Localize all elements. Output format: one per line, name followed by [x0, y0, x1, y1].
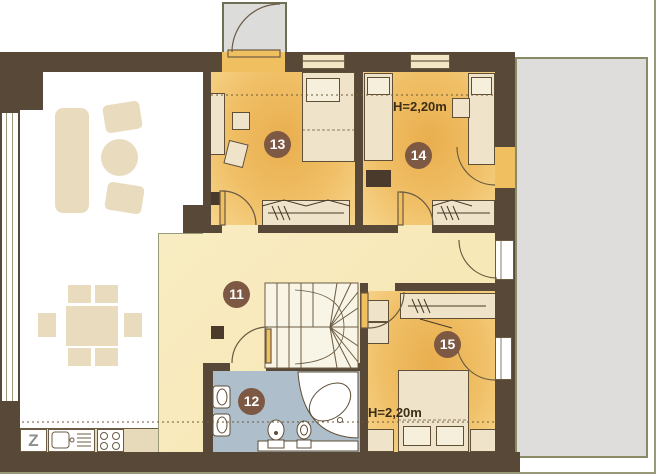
- dining-chair: [95, 285, 118, 303]
- wall-bathroom-left: [203, 363, 213, 452]
- left-wall-window: [2, 113, 18, 401]
- room-14-number: 14: [411, 147, 427, 163]
- room-11-badge: 11: [223, 281, 250, 308]
- room-15-badge: 15: [434, 331, 461, 358]
- left-window-glass-line2: [12, 113, 13, 401]
- void-hall-edge-horizontal: [158, 233, 203, 234]
- cabinet-room14: [366, 170, 391, 187]
- dining-chair: [68, 348, 91, 366]
- kitchen-appliance-z: Z: [20, 429, 47, 452]
- dining-chair: [68, 285, 91, 303]
- wall-bathroom-top-b: [266, 363, 360, 371]
- nightstand-left-room15: [366, 429, 394, 452]
- room15-window: [495, 337, 512, 380]
- room-11-number: 11: [229, 286, 244, 302]
- height-annotation-room15: H=2,20m: [368, 405, 422, 420]
- void-hall-edge-vertical: [158, 233, 159, 452]
- height-annotation-room14: H=2,20m: [393, 99, 447, 114]
- wardrobe-room15: [400, 293, 497, 319]
- room-12-number: 12: [244, 393, 260, 409]
- wall-void-room13: [203, 72, 211, 233]
- room-13-number: 13: [270, 136, 286, 152]
- wall-bedrooms-hall-c: [432, 225, 515, 233]
- dining-chair: [95, 348, 118, 366]
- kitchen-sink-unit: [48, 429, 95, 452]
- wardrobe-room13: [262, 200, 350, 226]
- pillow-right-room14: [471, 77, 492, 95]
- armchair-bottom: [104, 181, 145, 214]
- pillow-left-room14: [367, 77, 390, 95]
- room-15-number: 15: [440, 336, 456, 352]
- side-table-room13: [232, 112, 250, 130]
- wall-hall-room15: [395, 283, 515, 291]
- cabinet-room13: [210, 192, 223, 205]
- coffee-table: [101, 139, 138, 176]
- left-window-glass-line: [6, 113, 7, 401]
- wall-bedrooms-hall-b: [258, 225, 398, 233]
- terrace: [515, 57, 648, 458]
- side-table-room14: [452, 98, 470, 118]
- kitchen-stove: [97, 429, 124, 452]
- armchair-top: [102, 100, 143, 133]
- pillow-room13: [306, 78, 340, 102]
- room-13-badge: 13: [264, 131, 291, 158]
- room-12-badge: 12: [238, 388, 265, 415]
- dining-table: [66, 306, 118, 346]
- cabinet-hall: [211, 326, 224, 339]
- nightstand-right-room15: [470, 429, 497, 452]
- balcony: [222, 2, 287, 56]
- wardrobe-room14: [432, 200, 495, 226]
- wall-bottom: [0, 452, 520, 474]
- pillow-left-room15: [403, 426, 431, 446]
- room-14-badge: 14: [405, 142, 432, 169]
- hall-terrace-door: [495, 240, 514, 280]
- room14-top-window: [410, 54, 450, 69]
- sofa: [55, 108, 89, 213]
- wall-block-chimney: [183, 205, 203, 233]
- pillow-right-room15: [436, 426, 464, 446]
- wall-bedrooms-hall-a: [203, 225, 222, 233]
- balcony-door-opening: [222, 52, 285, 72]
- wall-room13-room14: [355, 72, 363, 225]
- dining-chair: [38, 313, 56, 337]
- room-12-bathroom-floor: [213, 371, 360, 452]
- dining-chair: [124, 313, 142, 337]
- floor-plan: Z: [0, 0, 656, 474]
- kitchen-appliance-label: Z: [28, 431, 38, 450]
- wall-room15-left: [360, 283, 368, 452]
- room14-terrace-door-opening: [495, 147, 515, 188]
- room13-top-window: [302, 54, 345, 69]
